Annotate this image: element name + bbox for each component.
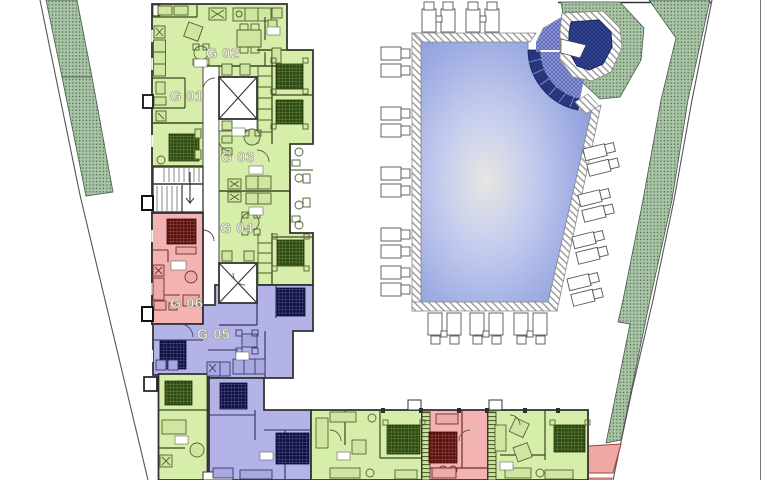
- svg-text:G 03: G 03: [221, 150, 254, 166]
- svg-text:G 05: G 05: [197, 327, 230, 343]
- svg-text:G 06: G 06: [170, 296, 203, 312]
- svg-text:G 01: G 01: [170, 89, 203, 105]
- svg-text:G 04: G 04: [220, 221, 253, 237]
- svg-text:G 02: G 02: [206, 46, 239, 62]
